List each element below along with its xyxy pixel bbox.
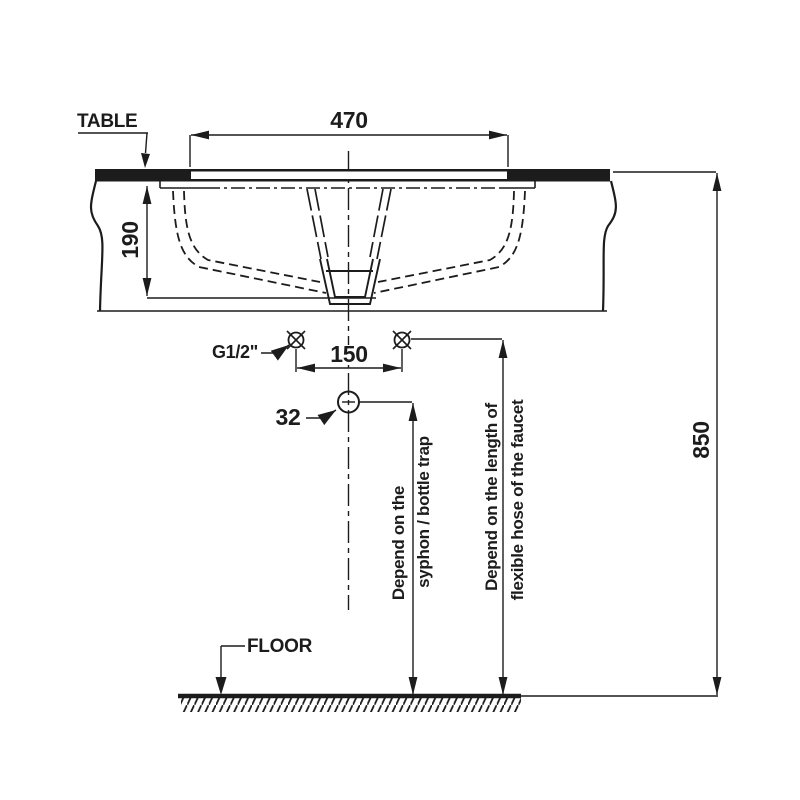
table-callout: TABLE	[77, 111, 150, 168]
well-wall	[307, 189, 321, 259]
table-label: TABLE	[77, 111, 137, 132]
hose-note-line2: flexible hose of the faucet	[508, 399, 527, 600]
dimension-850-value: 850	[688, 421, 714, 458]
well-wall	[370, 189, 383, 257]
dimension-150: 150	[296, 341, 402, 372]
dimension-470-value: 470	[330, 107, 367, 133]
leader-arrow	[141, 153, 150, 168]
leader-line	[146, 133, 148, 153]
drain-outlet: 32	[276, 392, 359, 431]
floor-group: FLOOR	[178, 636, 718, 712]
basin-outer-wall-left	[173, 191, 326, 293]
undercounter-basin-installation-drawing: 470 190 TABLE G1/2" 150 32	[0, 0, 800, 800]
leader-arrow	[216, 677, 227, 695]
dimension-190: 190	[117, 186, 376, 298]
supply-symbol-left	[287, 331, 305, 349]
syphon-note-line1: Depend on the	[389, 486, 408, 600]
dimension-190-value: 190	[117, 221, 143, 258]
drain-cup-inner	[327, 259, 373, 297]
leader-line	[261, 345, 289, 353]
supply-symbol-right	[393, 331, 411, 349]
dimension-850: 850	[613, 172, 717, 695]
dimension-150-value: 150	[330, 341, 367, 367]
supply-thread-callout: G1/2"	[212, 342, 289, 362]
counter-opening-strip	[191, 172, 507, 180]
drain-diameter-label: 32	[276, 404, 301, 430]
well-wall	[315, 189, 328, 257]
supply-thread-label: G1/2"	[212, 342, 258, 362]
syphon-note-line2: syphon / bottle trap	[414, 436, 433, 588]
installation-drawing-page: 470 190 TABLE G1/2" 150 32	[0, 0, 800, 800]
floor-label: FLOOR	[247, 636, 313, 657]
floor-hatching	[181, 698, 521, 712]
basin-rim-flange	[160, 181, 535, 188]
cabinet-right-break-edge	[603, 181, 616, 311]
well-wall	[377, 189, 391, 259]
dimension-syphon-height: Depend on the syphon / bottle trap	[359, 402, 433, 695]
counter-top	[91, 169, 616, 311]
hose-note-line1: Depend on the length of	[482, 403, 501, 591]
drain-cup	[320, 259, 380, 304]
leader-line	[306, 410, 336, 418]
cabinet-left-break-edge	[91, 181, 102, 311]
